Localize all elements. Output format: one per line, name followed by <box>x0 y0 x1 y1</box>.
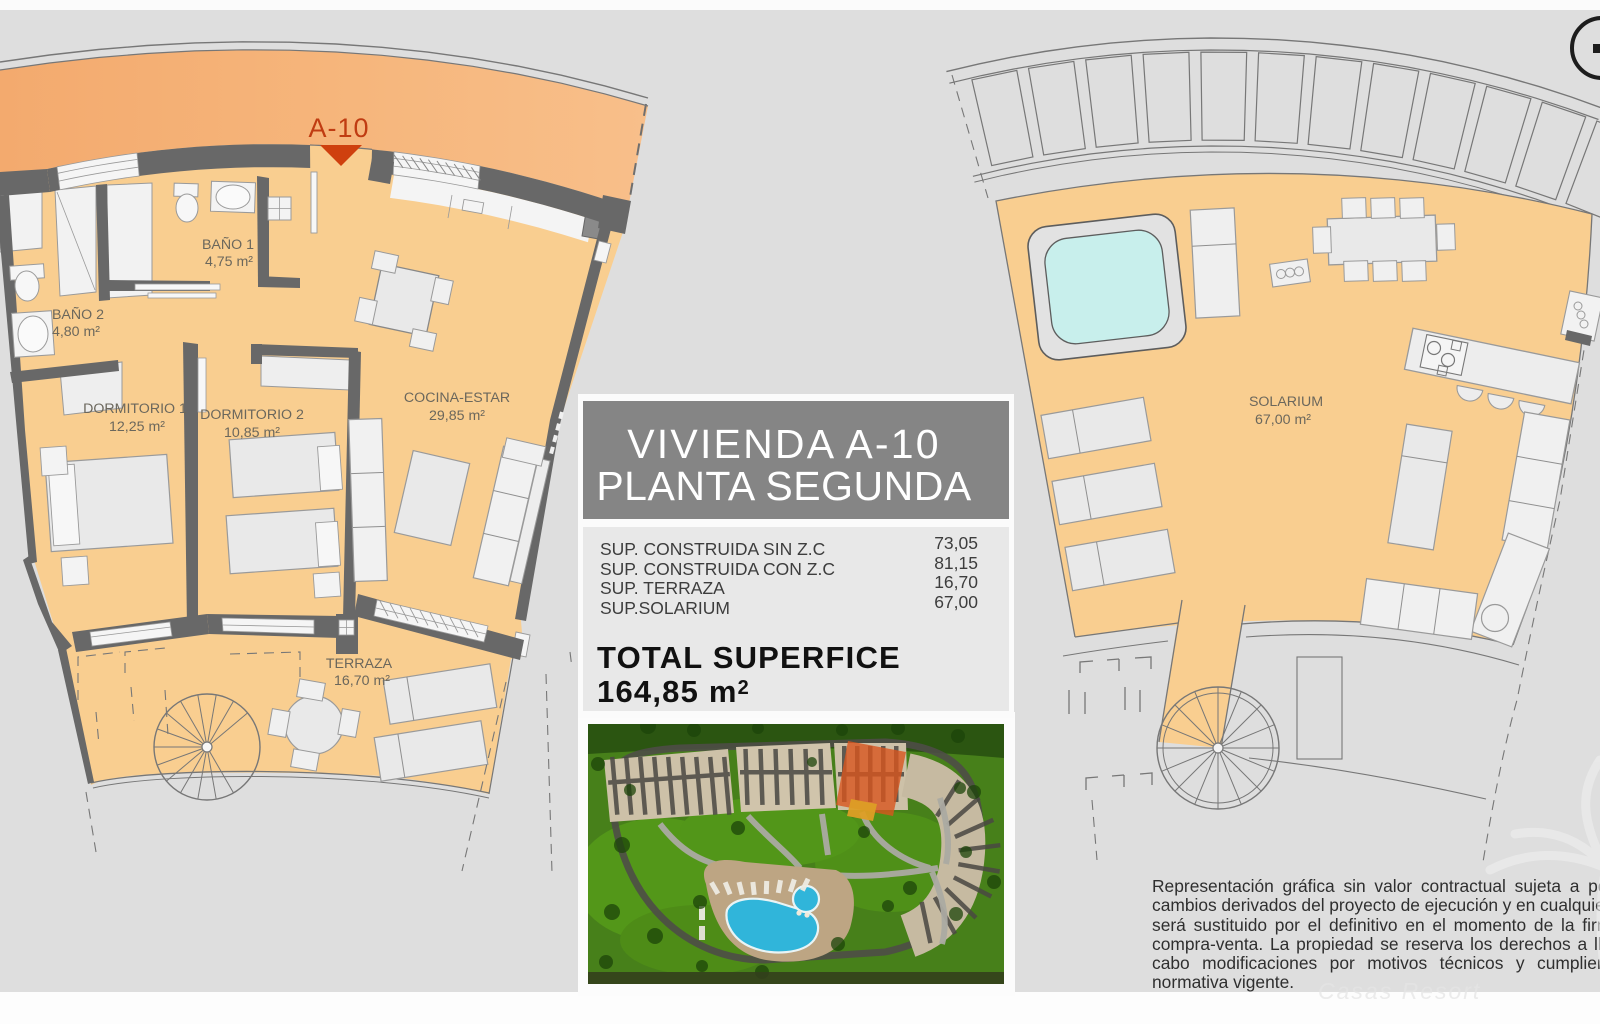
svg-text:4,75 m²: 4,75 m² <box>205 254 253 270</box>
svg-text:SOLARIUM: SOLARIUM <box>1249 394 1323 410</box>
svg-text:DORMITORIO 2: DORMITORIO 2 <box>200 407 304 423</box>
svg-text:A-10: A-10 <box>308 113 369 143</box>
svg-text:COCINA-ESTAR: COCINA-ESTAR <box>404 390 510 406</box>
svg-text:16,70 m²: 16,70 m² <box>334 673 390 689</box>
svg-text:67,00 m²: 67,00 m² <box>1255 412 1311 428</box>
svg-text:10,85 m²: 10,85 m² <box>224 425 280 441</box>
svg-text:DORMITORIO 1: DORMITORIO 1 <box>83 401 187 417</box>
svg-text:TERRAZA: TERRAZA <box>326 656 393 672</box>
svg-text:BAÑO 1: BAÑO 1 <box>202 236 254 253</box>
svg-text:BAÑO 2: BAÑO 2 <box>52 306 104 323</box>
svg-text:29,85 m²: 29,85 m² <box>429 408 485 424</box>
svg-text:4,80 m²: 4,80 m² <box>52 324 100 340</box>
svg-text:12,25 m²: 12,25 m² <box>109 419 165 435</box>
